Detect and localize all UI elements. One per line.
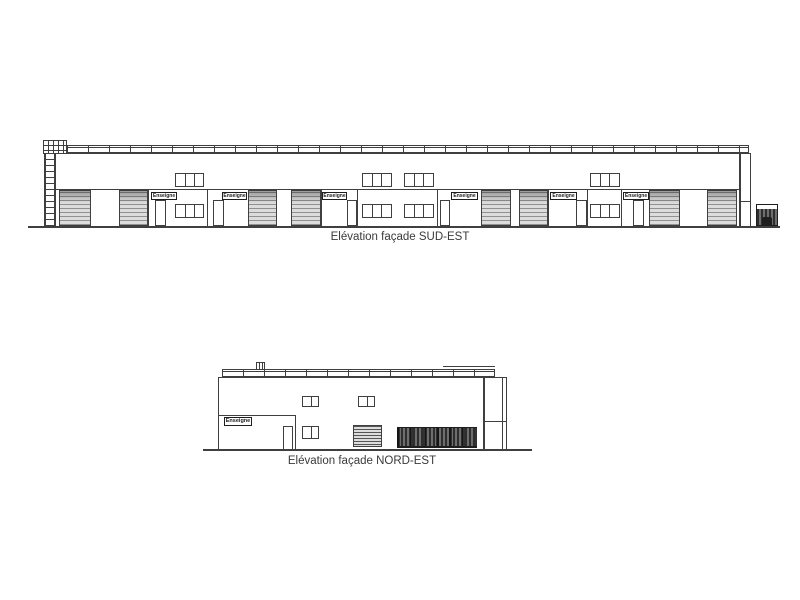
ground-line: [203, 449, 532, 451]
window-3pane: [590, 173, 620, 187]
elevation-drawing-sheet: Enseigne Enseigne Enseigne Enseigne Ense…: [0, 0, 800, 600]
roller-door: [481, 190, 511, 226]
entrance-door: [283, 426, 293, 450]
entrance-door: [347, 200, 357, 226]
bin-enclosure: [756, 204, 778, 226]
window-2pane: [302, 396, 319, 407]
roof-step-line: [443, 366, 495, 367]
sign-label: Enseigne: [223, 194, 245, 199]
entrance-door: [576, 200, 587, 226]
window-3pane: [175, 173, 204, 187]
sign-enseigne: Enseigne: [222, 192, 247, 200]
sign-enseigne: Enseigne: [224, 417, 252, 426]
facade-joint: [148, 190, 149, 226]
sign-label: Enseigne: [552, 194, 574, 199]
sign-label: Enseigne: [323, 194, 345, 199]
window-2pane: [358, 396, 375, 407]
roller-door: [649, 190, 680, 226]
facade-joint: [357, 190, 358, 226]
facade-joint: [548, 190, 549, 226]
wall-ladder: [44, 154, 56, 227]
roller-door: [59, 190, 91, 226]
roller-door: [119, 190, 148, 226]
roller-door: [248, 190, 277, 226]
facade-joint: [621, 190, 622, 226]
corner-downpipe: [740, 153, 751, 227]
window-3pane: [362, 173, 392, 187]
sign-enseigne: Enseigne: [550, 192, 577, 200]
entrance-door: [440, 200, 450, 226]
roof-access-box: [43, 140, 67, 154]
window-3pane: [362, 204, 392, 218]
roller-door: [519, 190, 548, 226]
sign-label: Enseigne: [226, 419, 250, 425]
entrance-door: [213, 200, 224, 226]
sign-label: Enseigne: [153, 194, 175, 199]
sign-enseigne: Enseigne: [623, 192, 649, 200]
sign-enseigne: Enseigne: [151, 192, 177, 200]
roof-band: [222, 369, 495, 377]
window-3pane: [590, 204, 620, 218]
entrance-door: [155, 200, 166, 226]
sign-label: Enseigne: [453, 194, 475, 199]
facade-joint: [437, 190, 438, 226]
roof-vent: [256, 362, 265, 370]
corner-return: [484, 377, 507, 450]
sign-enseigne: Enseigne: [322, 192, 347, 200]
annex-line: [295, 415, 296, 450]
facade-joint: [207, 190, 208, 226]
louver-grille: [353, 425, 382, 447]
window-3pane: [404, 204, 434, 218]
roller-door: [707, 190, 737, 226]
ground-line: [28, 226, 780, 228]
annex-line: [218, 415, 295, 416]
roof-band: [46, 145, 749, 153]
nord-est-title: Elévation façade NORD-EST: [262, 455, 462, 467]
window-3pane: [175, 204, 204, 218]
facade-joint: [587, 190, 588, 226]
window-2pane: [302, 426, 319, 439]
window-3pane: [404, 173, 434, 187]
sign-enseigne: Enseigne: [451, 192, 478, 200]
sign-label: Enseigne: [625, 194, 647, 199]
entrance-door: [633, 200, 644, 226]
sud-est-title: Elévation façade SUD-EST: [300, 231, 500, 243]
slatted-fence: [397, 427, 477, 448]
roller-door: [291, 190, 321, 226]
lintel-line: [56, 189, 739, 190]
